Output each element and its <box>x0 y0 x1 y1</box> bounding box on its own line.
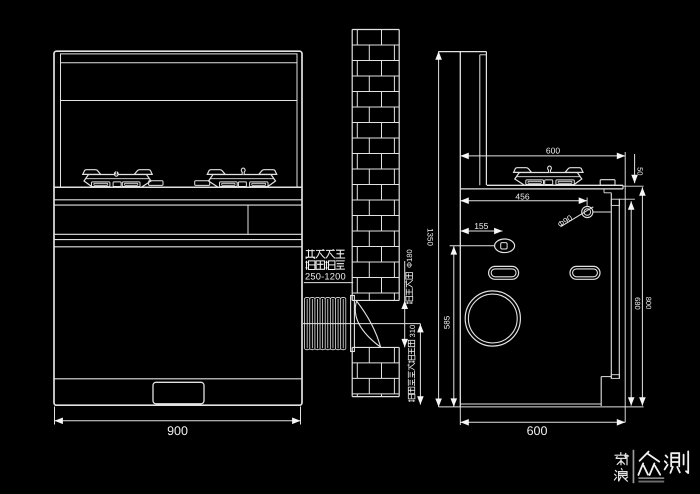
svg-text:800: 800 <box>644 297 653 310</box>
svg-text:456: 456 <box>515 191 529 201</box>
svg-text:900: 900 <box>167 424 188 438</box>
svg-text:600: 600 <box>546 146 560 156</box>
svg-text:310: 310 <box>408 325 417 338</box>
svg-text:680: 680 <box>633 297 642 310</box>
svg-text:250-1200: 250-1200 <box>305 271 346 281</box>
svg-text:155: 155 <box>474 221 488 231</box>
svg-text:585: 585 <box>442 315 451 329</box>
svg-text:600: 600 <box>527 424 548 438</box>
svg-text:Φ90: Φ90 <box>556 213 574 229</box>
svg-text:50: 50 <box>635 167 644 175</box>
svg-text:Φ180: Φ180 <box>405 249 414 268</box>
svg-text:1350: 1350 <box>425 228 434 246</box>
